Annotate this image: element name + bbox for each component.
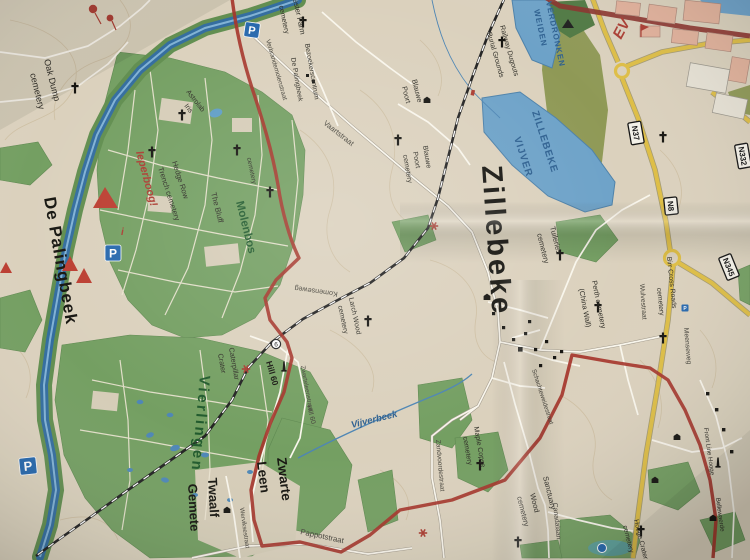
paper-map: 6 P P P P N37 N8 N345: [0, 0, 750, 560]
photo-lighting: [0, 0, 750, 560]
map-photo: 6 P P P P N37 N8 N345: [0, 0, 750, 560]
